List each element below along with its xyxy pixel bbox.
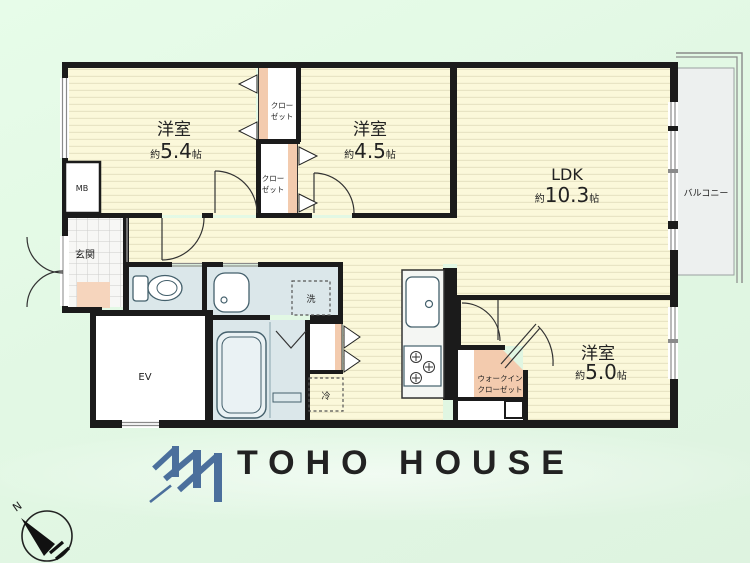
wic-white-part [457, 350, 474, 397]
pipe-space-box [505, 401, 523, 418]
room1-name: 洋室 [157, 120, 191, 140]
room2-name: 洋室 [353, 120, 387, 140]
bath-counter [273, 393, 301, 402]
wic-label-line2: クローゼット [478, 384, 523, 394]
toilet-door [172, 264, 202, 267]
hall-closet-strip [335, 324, 342, 370]
logo-mark-tail [150, 486, 171, 503]
wall-hall-d [352, 213, 457, 218]
compass-north-label: N [10, 499, 24, 514]
wic-label-line1: ウォークイン [478, 374, 523, 383]
wall-closet1-right [296, 62, 301, 142]
closet2-strip [288, 144, 298, 213]
wall-hall-closet-bottom [307, 370, 343, 374]
logo-mark [150, 446, 222, 502]
wall-hall-c [256, 213, 312, 218]
toho-house-logo: TOHO HOUSE [150, 444, 575, 502]
window-room3-right [668, 307, 678, 379]
wall-top [62, 62, 678, 68]
wall-washroom-right [338, 262, 343, 320]
wall-ev-right [205, 315, 213, 420]
wall-hall-closet-top [307, 320, 343, 324]
floorplan-svg: 洋室 約5.4帖 洋室 約4.5帖 LDK 約10.3帖 洋室 約5.0帖 バル… [0, 0, 750, 563]
wall-closet-divider [256, 139, 300, 144]
logo-text: TOHO HOUSE [237, 444, 575, 482]
closet2-label-line1: クロー [262, 174, 285, 183]
entrance-step-mat [77, 282, 110, 308]
wall-wic-left [453, 345, 458, 422]
balcony [676, 53, 742, 283]
wall-left-lower [90, 313, 96, 428]
meter-box-label: MB [76, 184, 88, 193]
washroom-sliding-door [223, 264, 258, 267]
wall-ldk-bottom [458, 295, 678, 300]
wall-washroom-top-a [207, 262, 223, 267]
wall-bottom [90, 420, 678, 428]
closet1-label-line1: クロー [271, 101, 294, 110]
wall-ev-top [90, 310, 213, 316]
washer-label: 洗 [306, 293, 315, 305]
balcony-floor [677, 68, 734, 275]
elevator-floor [96, 316, 205, 420]
closet2-label-line2: ゼット [262, 184, 285, 194]
kitchen-sink [406, 277, 439, 327]
elevator-label: EV [138, 372, 151, 383]
window-room1-left [60, 78, 69, 158]
entrance-label: 玄関 [75, 248, 95, 261]
closet1-strip [258, 68, 268, 139]
window-ldk-right [668, 102, 678, 250]
washbasin-fixture [214, 273, 249, 312]
wall-hall-b [202, 213, 213, 218]
wall-washroom-top-b [258, 262, 343, 267]
entrance-double-door [27, 237, 63, 307]
closet1-label-line2: ゼット [271, 111, 294, 121]
wall-washroom-bottom-a [207, 315, 270, 320]
elevator-door [122, 420, 159, 428]
ldk-name: LDK [551, 165, 583, 184]
compass: N [10, 499, 72, 561]
wall-wic-top [453, 345, 505, 350]
fridge-label: 冷 [321, 390, 330, 402]
hall-closet-interior [310, 324, 335, 370]
wall-toilet-right [202, 262, 207, 315]
toilet-fixture [133, 276, 182, 302]
wall-toilet-top [123, 262, 172, 267]
wall-room2-ldk [450, 62, 457, 218]
compass-needle-stripe-2 [56, 548, 69, 559]
wall-vestibule-left [455, 295, 461, 347]
stove [404, 346, 441, 386]
balcony-label: バルコニー [684, 188, 729, 199]
kitchen-faucet [426, 301, 433, 308]
kitchen-counter [402, 270, 444, 398]
vestibule-floor [457, 300, 523, 346]
